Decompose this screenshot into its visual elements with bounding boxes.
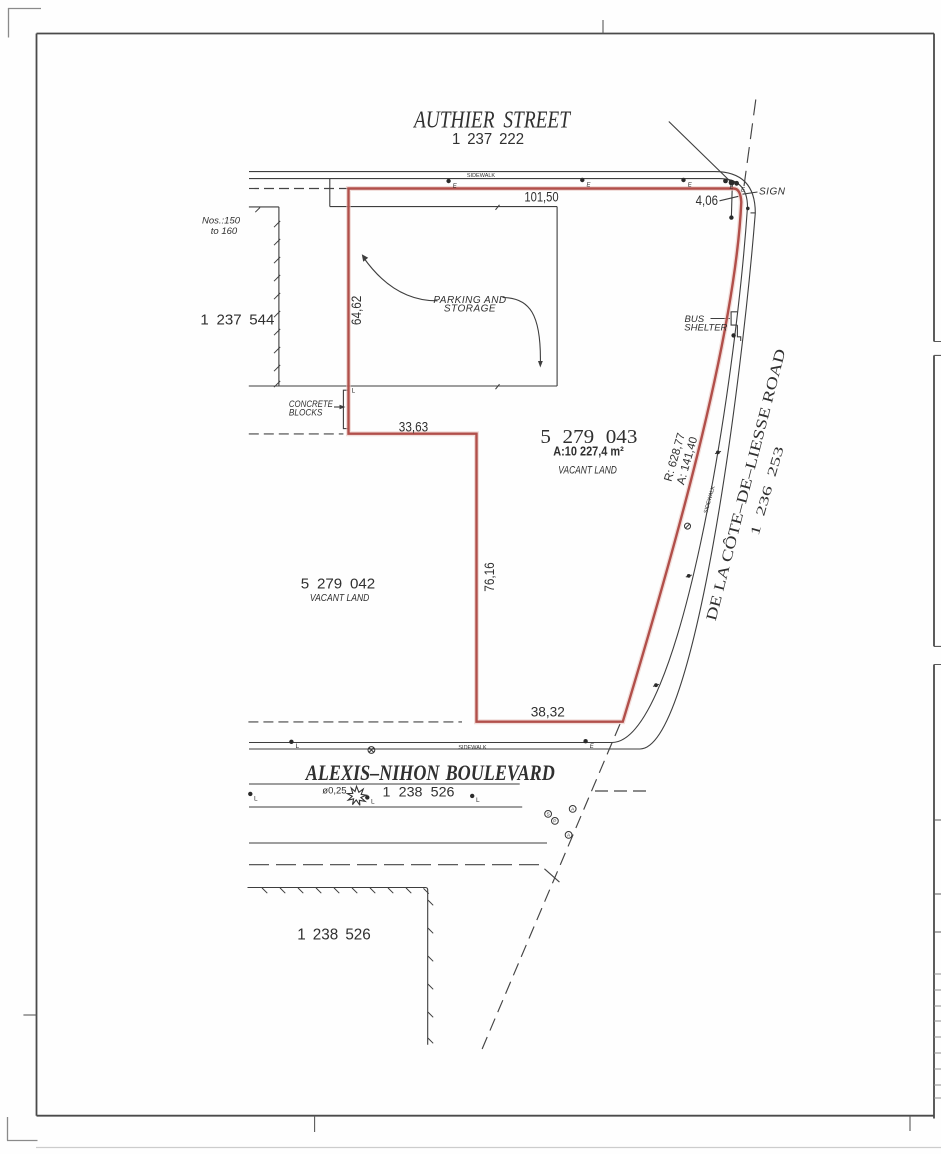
svg-text:VACANT LAND: VACANT LAND [558,465,617,477]
svg-text:A:10 227,4 m²: A:10 227,4 m² [553,444,624,459]
svg-text:1 237 222: 1 237 222 [452,131,524,148]
svg-text:BLOCKS: BLOCKS [289,408,323,419]
svg-text:4,06: 4,06 [696,192,718,208]
svg-text:L: L [352,388,356,395]
svg-text:SIDEWALK: SIDEWALK [467,173,496,179]
svg-text:AUTHIER STREET: AUTHIER STREET [412,107,571,133]
svg-text:SHELTER: SHELTER [684,323,727,334]
svg-text:38,32: 38,32 [531,703,565,719]
svg-text:SIGN: SIGN [759,187,786,198]
svg-text:1 237 544: 1 237 544 [200,311,274,328]
svg-text:L: L [296,743,300,750]
svg-text:ALEXIS–NIHON BOULEVARD: ALEXIS–NIHON BOULEVARD [304,760,555,785]
svg-text:1 238 526: 1 238 526 [383,785,455,800]
svg-text:L: L [254,796,258,803]
svg-text:64,62: 64,62 [348,296,364,326]
svg-text:S: S [546,812,549,818]
svg-text:76,16: 76,16 [481,562,497,592]
svg-text:SIDEWALK: SIDEWALK [458,745,487,751]
svg-text:STORAGE: STORAGE [444,304,496,315]
svg-text:ø0,25: ø0,25 [322,785,346,796]
svg-text:5 279 042: 5 279 042 [301,575,375,592]
svg-text:101,50: 101,50 [524,188,558,204]
svg-text:to 160: to 160 [211,226,238,237]
svg-text:L: L [476,797,480,804]
svg-text:33,63: 33,63 [399,419,429,435]
svg-text:1 238 526: 1 238 526 [297,927,371,944]
svg-text:L: L [371,799,375,806]
svg-text:P: P [553,819,556,825]
svg-text:VACANT LAND: VACANT LAND [310,593,370,604]
